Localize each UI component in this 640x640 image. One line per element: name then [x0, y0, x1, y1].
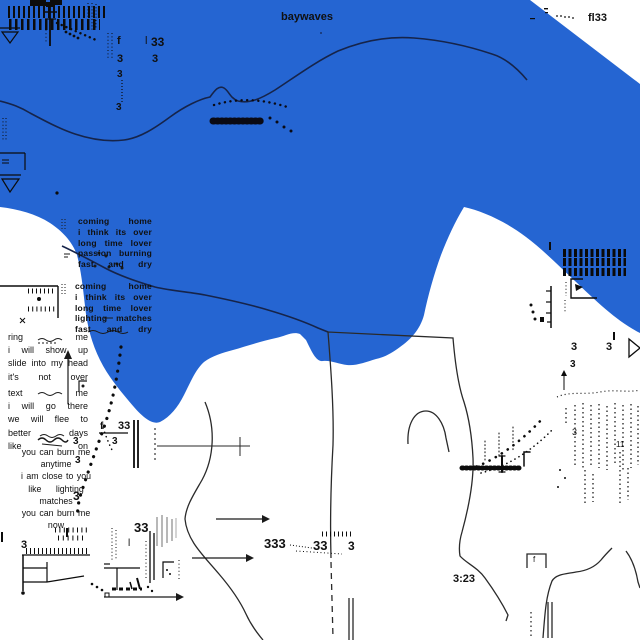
mark-f-box: f	[533, 556, 535, 564]
mark-3: 3	[73, 437, 79, 447]
mark-3: 3	[21, 540, 27, 551]
mark-bar: l	[145, 36, 147, 47]
barcode-row	[563, 249, 626, 257]
lyric-line: we will flee to	[8, 415, 88, 428]
lyric-line: fast and dry	[78, 260, 152, 271]
mark-f: f	[117, 36, 121, 47]
lyric-line: like lighting	[6, 485, 106, 497]
mark-11: 11	[616, 441, 624, 449]
dotted-texture-right	[557, 390, 640, 506]
dotted-arcs-right	[462, 418, 553, 473]
mark-33: 33	[118, 421, 130, 432]
barcode-top-left	[8, 6, 105, 18]
mark-3: 3	[117, 54, 123, 65]
sea-shape	[0, 0, 640, 423]
timecode-label: 3:23	[453, 574, 475, 585]
mark-33: 33	[151, 36, 164, 48]
lyric-line: i think its over	[75, 293, 152, 304]
ink-block	[30, 0, 46, 6]
mark-3: 3	[572, 428, 577, 437]
triangle-right-icon	[629, 339, 640, 357]
mark-3: 3	[348, 540, 355, 552]
mark-3: 3	[75, 456, 81, 466]
label-fl33: fl33	[588, 13, 607, 24]
lyric-line: slide into my head	[8, 359, 88, 372]
small-f-box	[527, 554, 546, 568]
lyric-line: it's not over	[8, 373, 88, 386]
barcode-right	[563, 249, 626, 277]
mark-33: 33	[313, 539, 327, 552]
barcode-row	[563, 258, 626, 266]
bay-bracket	[0, 286, 58, 323]
mark-3: 3	[606, 342, 612, 353]
mark-bar: l	[128, 539, 130, 549]
mark-33: 33	[134, 521, 148, 534]
lyrics-block-1: coming home i think its over long time l…	[78, 217, 152, 271]
mark-3: 3	[73, 490, 80, 502]
mark-3: 3	[571, 342, 577, 353]
outline-shapes	[157, 332, 640, 640]
lyrics-block-5: you can burn me anytime i am close to yo…	[6, 448, 106, 533]
barcode-top-left-row2	[8, 19, 100, 30]
mark-333: 333	[264, 537, 286, 550]
mark-3: 3	[152, 54, 158, 65]
mark-3: 3	[117, 70, 123, 80]
mark-3: 3	[112, 437, 118, 447]
lyric-line: i think its over	[78, 228, 152, 239]
lyrics-block-2: coming home i think its over long time l…	[75, 282, 152, 336]
mark-f: f	[100, 422, 103, 432]
headland-outline	[328, 332, 508, 621]
mark-3: 3	[116, 103, 122, 113]
baywaves-artwork: coming home i think its over long time l…	[0, 0, 640, 640]
bottomleft-assembly	[2, 528, 110, 597]
lyrics-block-3: ring me i will show up slide into my hea…	[8, 333, 88, 386]
lyric-line: i am close to you	[6, 472, 106, 484]
mark-3: 3	[570, 360, 576, 370]
inner-arc	[408, 411, 449, 452]
lyric-line: now	[6, 521, 106, 533]
ink-block	[46, 2, 55, 7]
barcode-row	[563, 268, 626, 276]
title-baywaves: baywaves	[281, 12, 333, 23]
